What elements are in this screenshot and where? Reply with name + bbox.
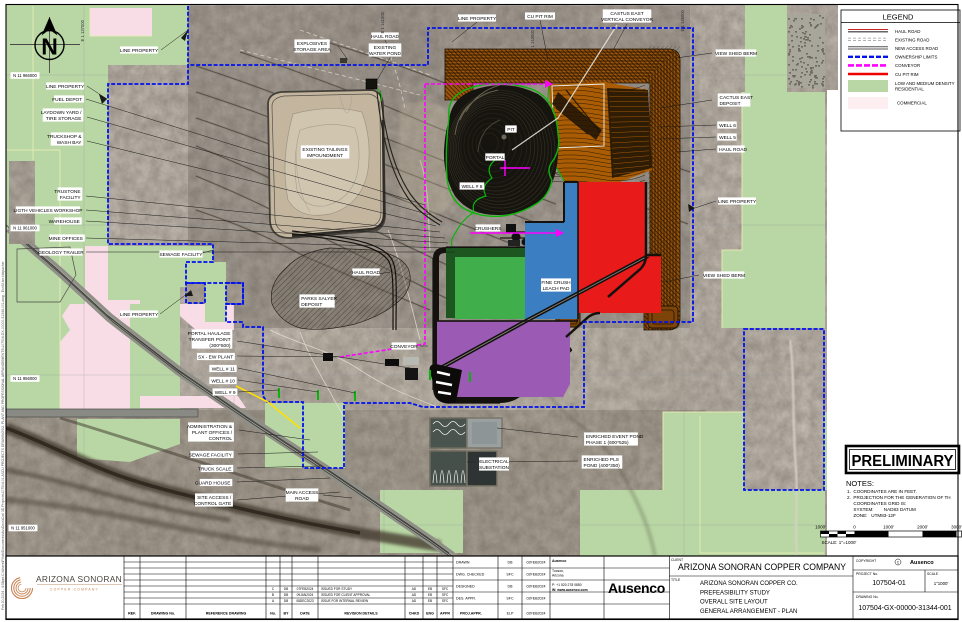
svg-text:PROJ.APPR.: PROJ.APPR. (460, 612, 482, 616)
svg-text:Ausenco: Ausenco (608, 580, 665, 596)
svg-text:GEOLOGY TRAILER: GEOLOGY TRAILER (38, 250, 84, 256)
svg-text:PORTAL: PORTAL (486, 155, 505, 161)
svg-text:DB: DB (284, 593, 288, 597)
svg-text:E 1 137000: E 1 137000 (80, 19, 85, 41)
svg-text:HAUL ROAD: HAUL ROAD (371, 34, 399, 40)
svg-text:DEPOSIT: DEPOSIT (720, 101, 741, 107)
svg-text:TIRE STORAGE: TIRE STORAGE (46, 116, 82, 122)
svg-text:DES. APPR.: DES. APPR. (456, 597, 476, 601)
svg-text:E 1 145000: E 1 145000 (680, 9, 685, 31)
svg-text:ARIZONA SONORAN COPPER COMPANY: ARIZONA SONORAN COPPER COMPANY (678, 562, 846, 572)
svg-text:HAUL ROAD: HAUL ROAD (719, 147, 747, 153)
svg-text:CONTROL GATE: CONTROL GATE (194, 501, 231, 507)
svg-text:AD: AD (412, 593, 417, 597)
svg-text:PIT: PIT (507, 127, 515, 133)
svg-text:TRANSFER POINT: TRANSFER POINT (189, 337, 231, 343)
svg-text:WELL 5: WELL 5 (719, 135, 736, 141)
svg-text:ELECTRICAL: ELECTRICAL (479, 459, 509, 465)
svg-text:COORDINATES GRID IS:: COORDINATES GRID IS: (847, 501, 906, 506)
svg-text:2000': 2000' (917, 525, 928, 530)
svg-text:WELL # 10: WELL # 10 (211, 378, 235, 384)
svg-text:SFC: SFC (442, 599, 449, 603)
svg-text:WELL # 11: WELL # 11 (212, 366, 236, 372)
svg-text:BY: BY (284, 612, 290, 616)
svg-text:02FEB2024: 02FEB2024 (527, 597, 546, 601)
svg-text:02FEB2024: 02FEB2024 (527, 561, 546, 565)
svg-text:08DEC2023: 08DEC2023 (296, 599, 314, 603)
svg-text:FINE CRUSH: FINE CRUSH (541, 280, 571, 286)
svg-text:TRUCKSHOP &: TRUCKSHOP & (47, 134, 82, 140)
svg-text:LEACH PAD: LEACH PAD (543, 286, 570, 292)
svg-text:07FEB2024: 07FEB2024 (297, 587, 314, 591)
svg-text:CASTUS EAST: CASTUS EAST (610, 11, 643, 17)
svg-text:DRAWN: DRAWN (456, 561, 470, 565)
svg-text:3000': 3000' (951, 525, 962, 530)
svg-text:N: N (41, 34, 58, 60)
svg-text:LINE PROPERTY: LINE PROPERTY (458, 16, 497, 22)
svg-text:N 11 966000: N 11 966000 (13, 73, 37, 78)
svg-text:FUEL DEPOT: FUEL DEPOT (52, 97, 82, 103)
svg-text:DEPOSIT: DEPOSIT (301, 302, 322, 308)
svg-text:AD: AD (412, 599, 417, 603)
svg-text:MINE OFFICES: MINE OFFICES (49, 236, 83, 242)
svg-text:Ausenco: Ausenco (910, 560, 934, 566)
svg-text:DRAWING No.: DRAWING No. (856, 595, 879, 599)
svg-text:DB: DB (508, 585, 514, 589)
svg-text:COPPER COMPANY: COPPER COMPANY (50, 588, 99, 592)
svg-text:HAUL ROAD: HAUL ROAD (352, 270, 380, 276)
svg-text:LOW AND MEDIUM DENSITY: LOW AND MEDIUM DENSITY (895, 81, 955, 86)
svg-text:ISSUED FOR STUDY: ISSUED FOR STUDY (321, 587, 353, 591)
svg-text:1000': 1000' (815, 525, 826, 530)
svg-text:LINE PROPERTY: LINE PROPERTY (120, 312, 159, 318)
svg-text:LEGEND: LEGEND (883, 13, 914, 22)
svg-text:CU PIT RIM: CU PIT RIM (895, 72, 919, 77)
svg-text:1. COORDINATES ARE IN FEET.: 1. COORDINATES ARE IN FEET. (847, 489, 917, 494)
svg-text:No.: No. (270, 612, 276, 616)
svg-text:Tucson,: Tucson, (552, 569, 564, 573)
svg-text:APPR: APPR (440, 612, 450, 616)
svg-text:1"1000': 1"1000' (934, 581, 949, 586)
svg-text:DWG. CHECKED: DWG. CHECKED (456, 573, 485, 577)
svg-text:REFERENCE DRAWING: REFERENCE DRAWING (206, 612, 247, 616)
svg-text:LINE PROPERTY: LINE PROPERTY (120, 48, 159, 54)
svg-text:W: www.ausenco.com: W: www.ausenco.com (552, 588, 588, 592)
svg-text:107504-GX-00000-31344-001: 107504-GX-00000-31344-001 (858, 605, 952, 612)
svg-text:LAYDOWN YARD /: LAYDOWN YARD / (41, 110, 82, 116)
svg-text:ADMINISTRATION &: ADMINISTRATION & (187, 424, 233, 430)
svg-text:1000': 1000' (883, 525, 894, 530)
svg-text:COMMERCIAL: COMMERCIAL (897, 101, 927, 106)
svg-text:OWNERSHIP LIMITS: OWNERSHIP LIMITS (895, 55, 937, 60)
svg-text:WELL # 9: WELL # 9 (215, 390, 236, 396)
svg-text:02FEB2024: 02FEB2024 (527, 573, 546, 577)
svg-text:N 11 951000: N 11 951000 (11, 526, 35, 531)
svg-text:ISSUED FOR CLIENT APPROVAL: ISSUED FOR CLIENT APPROVAL (321, 593, 371, 597)
svg-text:EB: EB (428, 593, 432, 597)
svg-text:DB: DB (508, 561, 514, 565)
svg-text:CONVEYOR: CONVEYOR (895, 63, 920, 68)
svg-text:107504-01: 107504-01 (872, 580, 906, 587)
svg-text:DATE: DATE (300, 612, 310, 616)
svg-text:09JAN2024: 09JAN2024 (297, 593, 314, 597)
svg-text:EXISTING ROAD: EXISTING ROAD (895, 37, 929, 42)
svg-text:PROJECT No.: PROJECT No. (856, 572, 878, 576)
svg-text:PREFEASIBILITY STUDY: PREFEASIBILITY STUDY (700, 591, 770, 597)
svg-text:CONVEYOR: CONVEYOR (390, 344, 418, 350)
svg-text:SFC: SFC (506, 597, 514, 601)
svg-text:REVISION DETAILS: REVISION DETAILS (344, 612, 378, 616)
svg-text:ISSUE FOR INTERNAL REVIEW: ISSUE FOR INTERNAL REVIEW (321, 599, 368, 603)
svg-text:P: +1 520 278 0850: P: +1 520 278 0850 (552, 583, 582, 587)
svg-text:LIGTH VEHICLES WORKSHOP: LIGTH VEHICLES WORKSHOP (13, 208, 82, 214)
svg-text:DB: DB (284, 587, 288, 591)
svg-text:OVERALL SITE LAYOUT: OVERALL SITE LAYOUT (700, 600, 768, 606)
svg-text:E 1 141000: E 1 141000 (380, 11, 385, 33)
svg-text:TRUCK SCALE: TRUCK SCALE (198, 466, 232, 472)
svg-text:CHKD: CHKD (409, 612, 420, 616)
svg-text:N 11 961000: N 11 961000 (13, 226, 37, 231)
svg-text:PRELIMINARY: PRELIMINARY (852, 453, 955, 470)
svg-text:VIEW SHED BERM: VIEW SHED BERM (703, 273, 745, 279)
svg-text:RESIDENTIAL: RESIDENTIAL (895, 87, 924, 92)
svg-text:LINE PROPERTY: LINE PROPERTY (46, 84, 85, 90)
svg-text:SEWAGE FACILITY: SEWAGE FACILITY (189, 452, 233, 458)
svg-text:PLANT OFFICES /: PLANT OFFICES / (192, 430, 233, 436)
svg-text:DESIGNED: DESIGNED (456, 585, 475, 589)
svg-text:PARKS SALYER: PARKS SALYER (301, 296, 337, 302)
svg-text:2. PROJECTION FOR THE GENERAT: 2. PROJECTION FOR THE GENERATION OF TH (847, 495, 951, 500)
svg-text:HAUL ROAD: HAUL ROAD (895, 29, 920, 34)
svg-text:EXPLOSIVES: EXPLOSIVES (297, 41, 327, 47)
svg-text:IMPOUNDMENT: IMPOUNDMENT (307, 153, 343, 159)
svg-text:ENRICHED EVENT POND: ENRICHED EVENT POND (586, 434, 644, 440)
svg-text:ROAD: ROAD (295, 496, 309, 502)
svg-text:(300*500): (300*500) (209, 343, 230, 349)
svg-text:NOTES:: NOTES: (846, 479, 874, 488)
svg-text:Feb 20,2024 - 4:58pm C:\Users\: Feb 20,2024 - 4:58pm C:\Users\PVolk\Docu… (1, 260, 5, 610)
svg-text:Ausenco: Ausenco (552, 559, 566, 563)
svg-text:CRUSHERS: CRUSHERS (475, 226, 502, 232)
svg-text:B: B (272, 593, 274, 597)
svg-text:02FEB2024: 02FEB2024 (527, 612, 546, 616)
svg-text:E 1 143000: E 1 143000 (530, 29, 535, 51)
svg-text:MAIN ACCESS: MAIN ACCESS (286, 490, 319, 496)
svg-text:EXISTING: EXISTING (374, 45, 397, 51)
svg-text:SEWAGE FACILITY: SEWAGE FACILITY (159, 252, 203, 258)
svg-text:SITE ACCESS /: SITE ACCESS / (197, 495, 232, 501)
svg-text:ARIZONA SONORAN COPPER CO.: ARIZONA SONORAN COPPER CO. (700, 581, 798, 587)
svg-text:EB: EB (428, 599, 432, 603)
svg-text:VERTICAL CONVEYOR: VERTICAL CONVEYOR (601, 17, 654, 23)
svg-text:PHASE 1 (600*525): PHASE 1 (600*525) (586, 440, 629, 446)
svg-text:WELL # 8: WELL # 8 (462, 184, 483, 190)
svg-text:ENG: ENG (426, 612, 434, 616)
svg-text:SCALE: SCALE (927, 572, 939, 576)
svg-text:DRAWING No.: DRAWING No. (151, 612, 175, 616)
svg-text:TITLE: TITLE (671, 578, 681, 582)
svg-text:EXISTING TAILINGS: EXISTING TAILINGS (302, 147, 347, 153)
svg-text:VIEW SHED BERM: VIEW SHED BERM (715, 51, 757, 57)
svg-text:FACILITY: FACILITY (60, 195, 82, 201)
svg-text:NEW ACCESS ROAD: NEW ACCESS ROAD (895, 46, 938, 51)
svg-text:EB: EB (428, 587, 432, 591)
svg-text:SYSTEM: NAD83 DATUM: SYSTEM: NAD83 DATUM (847, 507, 916, 512)
svg-text:SFC: SFC (442, 587, 449, 591)
svg-text:WASH BAY: WASH BAY (57, 140, 83, 146)
svg-text:POND (400*350): POND (400*350) (584, 463, 621, 469)
svg-text:WELL 6: WELL 6 (719, 123, 736, 129)
svg-text:ENRICHED PLS: ENRICHED PLS (584, 457, 619, 463)
svg-text:COPYRIGHT: COPYRIGHT (856, 559, 876, 563)
svg-text:ELP: ELP (507, 612, 514, 616)
svg-text:02FEB2024: 02FEB2024 (527, 585, 546, 589)
svg-text:AD: AD (412, 587, 417, 591)
svg-text:N 11 956000: N 11 956000 (13, 376, 37, 381)
svg-text:SX - EW PLANT: SX - EW PLANT (198, 354, 233, 360)
svg-text:ARIZONA SONORAN: ARIZONA SONORAN (36, 574, 122, 584)
svg-text:LINE PROPERTY: LINE PROPERTY (718, 199, 757, 205)
svg-text:GENERAL ARRANGEMENT - PLAN: GENERAL ARRANGEMENT - PLAN (700, 609, 797, 615)
svg-text:CONTROL: CONTROL (209, 436, 233, 442)
svg-text:ZONE: UTM83-12F: ZONE: UTM83-12F (847, 513, 896, 518)
svg-text:SUBSTATION: SUBSTATION (479, 465, 509, 471)
svg-text:PORTAL HAULAGE: PORTAL HAULAGE (188, 331, 231, 337)
svg-text:Arizona: Arizona (552, 574, 564, 578)
svg-text:WATER POND: WATER POND (369, 51, 402, 57)
svg-text:SFC: SFC (442, 593, 449, 597)
svg-text:REF.: REF. (128, 612, 136, 616)
svg-text:SCALE: 1"=1000': SCALE: 1"=1000' (822, 540, 857, 545)
svg-text:CACTUS EAST: CACTUS EAST (720, 95, 754, 101)
svg-text:WAREHOUSE: WAREHOUSE (49, 219, 80, 225)
svg-text:SFC: SFC (506, 573, 514, 577)
svg-text:DB: DB (284, 599, 288, 603)
svg-text:STORAGE AREA: STORAGE AREA (293, 47, 331, 53)
svg-text:GUARD HOUSE: GUARD HOUSE (195, 480, 231, 486)
svg-text:TRUSTONE: TRUSTONE (54, 189, 80, 195)
svg-text:CU PIT RIM: CU PIT RIM (527, 14, 553, 20)
